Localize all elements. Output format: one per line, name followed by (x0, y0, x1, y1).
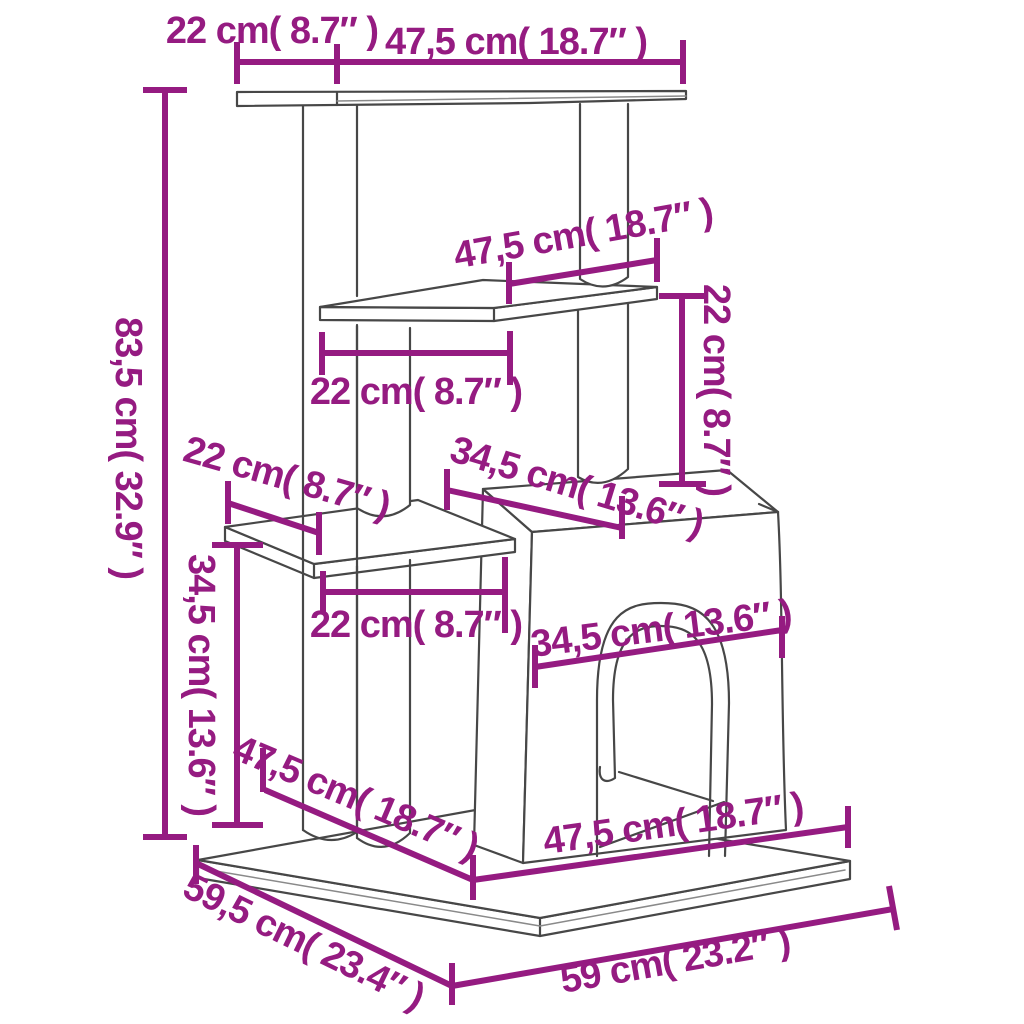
diagram-canvas: 22 cm( 8.7″ ) 47,5 cm( 18.7″ ) 83,5 cm( … (0, 0, 1024, 1024)
scratching-post-right-mid (578, 303, 628, 483)
dim-upper-gap-height-label: 22 cm( 8.7″ ) (695, 284, 737, 496)
dim-total-height-label: 83,5 cm( 32.9″ ) (107, 317, 149, 579)
dim-base-width-label: 59 cm( 23.2″ ) (557, 920, 793, 1002)
cat-tree-dimension-diagram: 22 cm( 8.7″ ) 47,5 cm( 18.7″ ) 83,5 cm( … (0, 0, 1024, 1024)
dim-top-width-label: 47,5 cm( 18.7″ ) (385, 21, 647, 63)
scratching-post-right-upper (580, 104, 628, 287)
dim-mid-platform-depth-label: 22 cm( 8.7″ ) (310, 371, 522, 413)
dim-top-depth-label: 22 cm( 8.7″ ) (166, 10, 378, 52)
dim-lower-height-label: 34,5 cm( 13.6″ ) (180, 554, 222, 816)
top-board (237, 91, 686, 106)
dim-small-platform-width-label: 22 cm( 8.7″ ) (310, 604, 522, 646)
